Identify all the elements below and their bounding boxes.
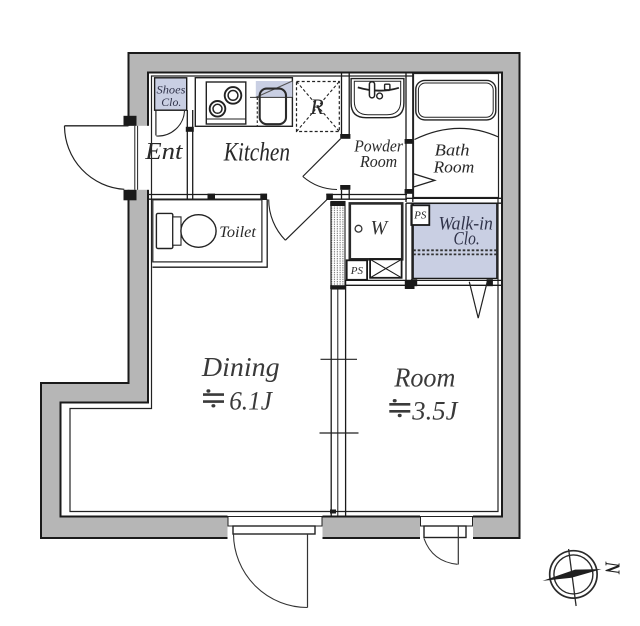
svg-text:Clo.: Clo. xyxy=(454,230,480,250)
svg-text:W: W xyxy=(370,217,389,239)
svg-text:Room: Room xyxy=(359,152,397,171)
svg-text:Kitchen: Kitchen xyxy=(223,137,290,166)
svg-text:Room: Room xyxy=(432,157,474,176)
svg-text:3.5J: 3.5J xyxy=(411,396,459,425)
svg-text:Ent: Ent xyxy=(144,138,184,165)
svg-text:Room: Room xyxy=(393,362,455,393)
svg-text:R: R xyxy=(309,94,324,119)
svg-text:PS: PS xyxy=(350,265,364,277)
svg-text:PS: PS xyxy=(413,209,427,221)
svg-text:Toilet: Toilet xyxy=(219,224,256,241)
svg-text:Clo.: Clo. xyxy=(161,95,181,109)
svg-text:Dining: Dining xyxy=(201,351,280,382)
svg-text:6.1J: 6.1J xyxy=(229,387,273,416)
svg-text:N: N xyxy=(600,561,623,575)
